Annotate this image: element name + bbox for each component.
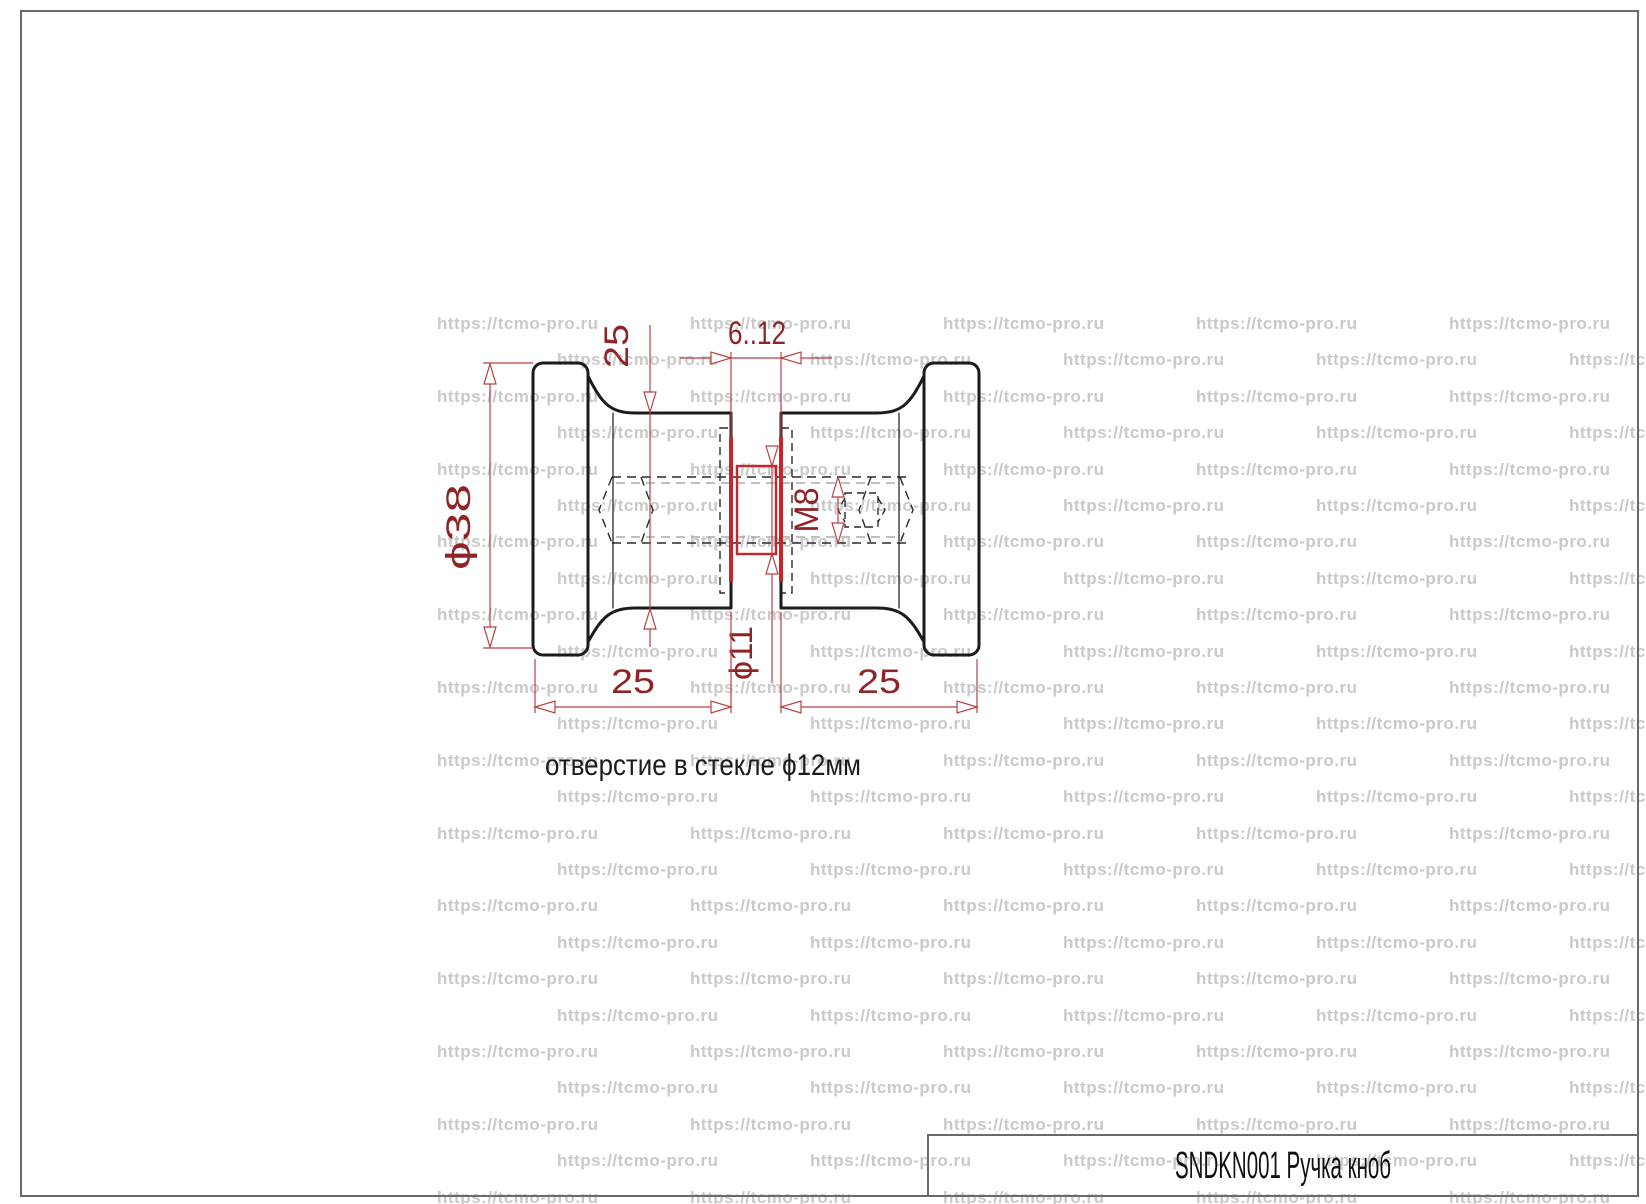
- note-text: отверстие в стекле ϕ12мм: [545, 749, 861, 782]
- drawing-sheet: https://tcmo-pro.ruhttps://tcmo-pro.ruht…: [0, 0, 1646, 1204]
- m8-label: M8: [788, 488, 826, 533]
- glass-extension-lines: [731, 352, 781, 437]
- left25-label: 25: [611, 663, 655, 701]
- d11-label: ϕ11: [723, 626, 759, 680]
- grub-screw-chamfer-right: [878, 498, 885, 522]
- grub-screw-hidden-lines: [838, 493, 885, 527]
- grub-screw-body: [845, 493, 878, 527]
- dimension-stem-diameter: 25: [598, 324, 656, 647]
- title-block-text: SNDKN001 Ручка кноб: [1175, 1145, 1391, 1187]
- bushing-through-glass: [737, 466, 776, 554]
- stem25-label: 25: [598, 324, 636, 368]
- left-hex-facet: [641, 477, 653, 543]
- right-drill-point: [900, 477, 913, 543]
- d38-label: ϕ38: [440, 484, 478, 570]
- right25-label: 25: [857, 663, 901, 701]
- dimension-thread: M8: [788, 477, 844, 543]
- dimension-glass-thickness: 6..12: [680, 315, 832, 437]
- left-knob: [533, 363, 731, 655]
- grub-screw-chamfer-left: [838, 498, 845, 522]
- left-knob-head: [533, 363, 588, 655]
- right-knob-head: [924, 363, 979, 655]
- title-block: SNDKN001 Ручка кноб: [928, 1135, 1638, 1196]
- dimension-left-knob-length: 25: [535, 612, 731, 713]
- sheet-border: [21, 11, 1638, 1196]
- right-hex-facet: [859, 477, 871, 543]
- glass-thickness-label: 6..12: [728, 315, 786, 351]
- left-drill-point: [599, 477, 612, 543]
- thread-hidden-lines: [599, 477, 913, 543]
- technical-drawing: ϕ38 25 6..12 M8 ϕ11: [0, 0, 1646, 1204]
- dimension-head-diameter: ϕ38: [440, 363, 533, 648]
- left-knob-stem: [588, 376, 731, 642]
- dimension-right-knob-length: 25: [781, 612, 977, 713]
